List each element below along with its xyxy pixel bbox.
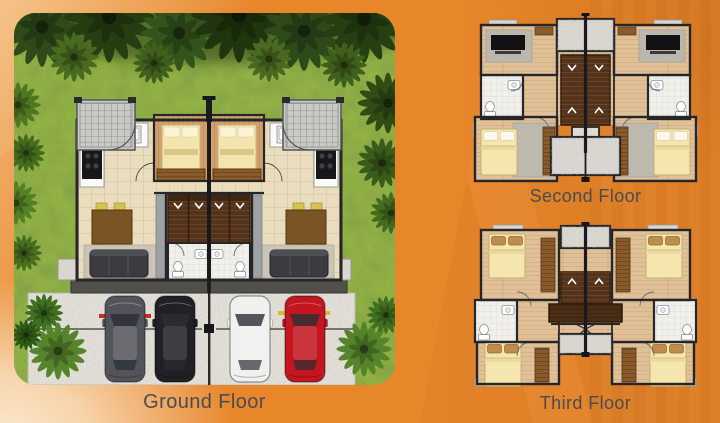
ground-floor-label: Ground Floor — [14, 391, 395, 414]
car-gray-suv — [103, 296, 148, 382]
third-floor-plan — [473, 222, 698, 388]
third-floor-label: Third Floor — [473, 393, 698, 414]
car-red-sedan — [283, 296, 328, 382]
ground-floor-plan — [14, 13, 395, 385]
second-floor-plan — [473, 13, 698, 185]
car-black-suv — [153, 296, 198, 382]
ground-floor-panel — [14, 13, 395, 385]
second-floor-label: Second Floor — [473, 186, 698, 207]
house-unit-right — [209, 97, 344, 280]
side-footing — [58, 259, 76, 280]
brochure-page: Ground Floor Second Floor Third Floor — [0, 0, 720, 423]
house-unit-left — [74, 97, 209, 280]
car-white-suv — [228, 296, 273, 382]
